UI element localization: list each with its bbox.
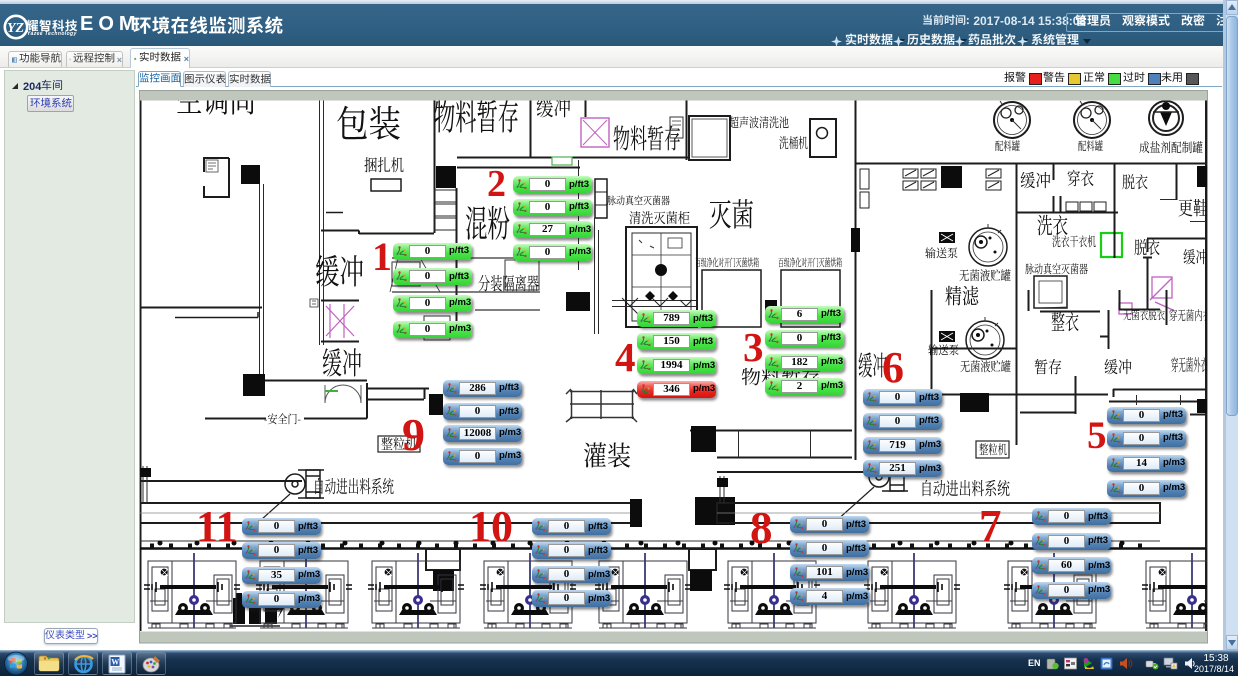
svg-text:YZ: YZ <box>7 21 25 36</box>
svg-text:W: W <box>111 657 119 666</box>
